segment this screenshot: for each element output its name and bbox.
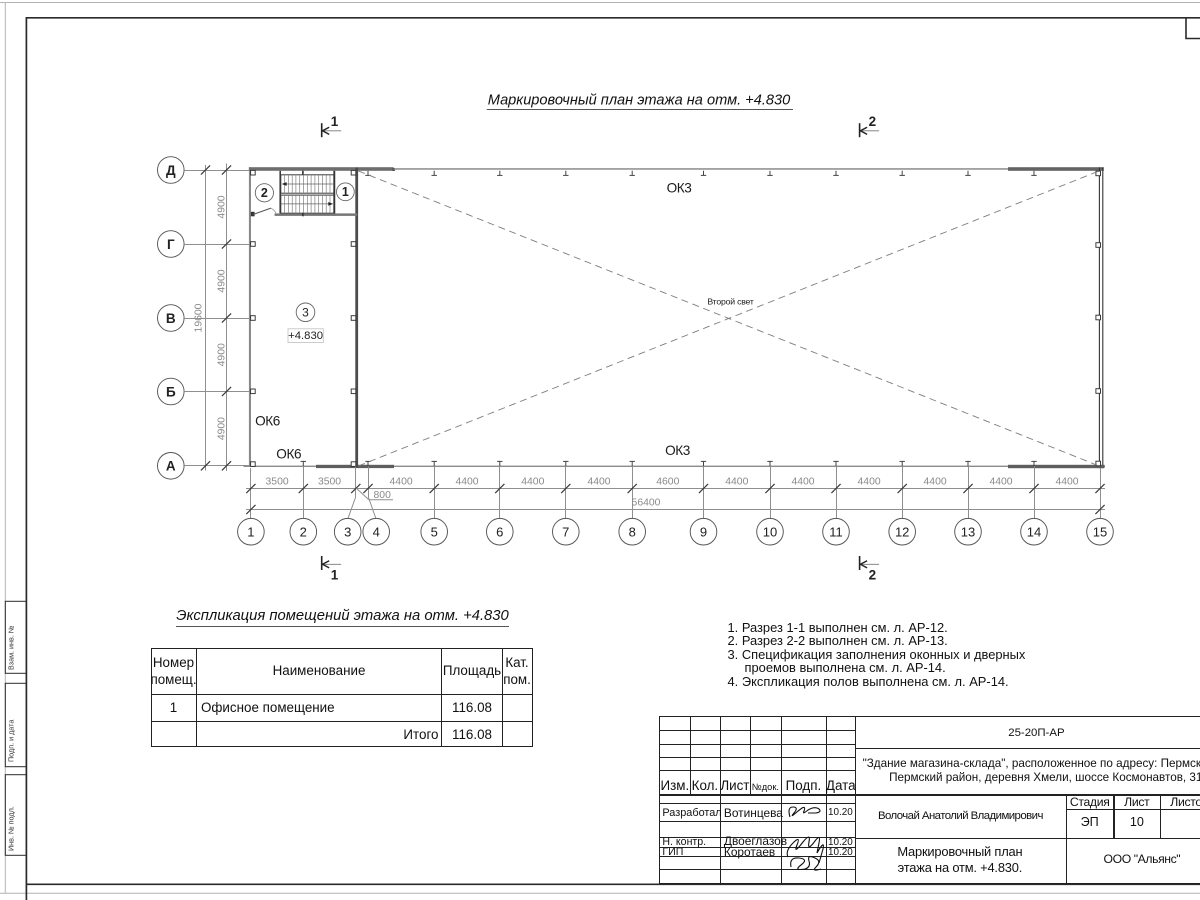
- svg-text:В: В: [166, 311, 176, 326]
- svg-text:4400: 4400: [989, 477, 1012, 488]
- svg-text:4400: 4400: [1055, 477, 1078, 488]
- svg-text:3: 3: [302, 306, 309, 320]
- svg-text:13: 13: [961, 525, 975, 540]
- svg-text:6: 6: [496, 525, 503, 540]
- svg-text:Б: Б: [166, 384, 176, 399]
- svg-text:+4.830: +4.830: [288, 330, 323, 342]
- svg-text:4400: 4400: [725, 477, 748, 488]
- svg-text:4900: 4900: [217, 195, 228, 218]
- svg-text:800: 800: [374, 490, 392, 501]
- svg-text:3500: 3500: [266, 477, 289, 488]
- svg-text:5: 5: [431, 525, 438, 540]
- svg-text:ОК3: ОК3: [665, 443, 690, 458]
- svg-text:8: 8: [629, 525, 636, 540]
- svg-text:1: 1: [331, 568, 339, 583]
- svg-text:4400: 4400: [791, 477, 814, 488]
- svg-text:Второй свет: Второй свет: [707, 296, 754, 306]
- svg-text:4400: 4400: [587, 477, 610, 488]
- svg-text:15: 15: [1093, 525, 1107, 540]
- svg-text:56400: 56400: [632, 498, 661, 509]
- svg-text:2: 2: [300, 525, 307, 540]
- svg-text:1: 1: [342, 185, 349, 199]
- svg-text:14: 14: [1027, 525, 1041, 540]
- svg-text:9: 9: [700, 525, 707, 540]
- svg-text:2: 2: [869, 568, 877, 583]
- svg-text:4400: 4400: [455, 477, 478, 488]
- svg-text:4900: 4900: [217, 269, 228, 292]
- svg-text:12: 12: [895, 525, 909, 540]
- svg-text:4900: 4900: [217, 343, 228, 366]
- svg-text:Взам. инв. №: Взам. инв. №: [7, 625, 16, 670]
- svg-text:7: 7: [562, 525, 569, 540]
- svg-text:4400: 4400: [858, 477, 881, 488]
- svg-text:Д: Д: [166, 163, 176, 178]
- svg-text:1: 1: [247, 525, 254, 540]
- svg-text:3: 3: [344, 525, 351, 540]
- svg-text:4900: 4900: [217, 417, 228, 440]
- svg-text:4400: 4400: [390, 477, 413, 488]
- svg-text:1: 1: [331, 114, 339, 129]
- svg-text:2: 2: [261, 186, 268, 200]
- svg-text:2: 2: [869, 114, 877, 129]
- svg-text:Маркировочный план этажа на от: Маркировочный план этажа на отм. +4.830: [488, 93, 790, 109]
- svg-text:Подп. и дата: Подп. и дата: [7, 720, 16, 762]
- svg-text:19600: 19600: [194, 303, 205, 332]
- svg-text:4600: 4600: [656, 477, 679, 488]
- svg-text:10: 10: [763, 525, 777, 540]
- svg-text:А: А: [166, 459, 176, 474]
- svg-text:Инв. № подл.: Инв. № подл.: [7, 806, 16, 851]
- svg-text:ОК6: ОК6: [255, 413, 280, 428]
- svg-text:4400: 4400: [924, 477, 947, 488]
- svg-text:Г: Г: [167, 237, 175, 252]
- svg-text:11: 11: [829, 525, 843, 540]
- svg-text:3500: 3500: [318, 477, 341, 488]
- svg-text:ОК3: ОК3: [667, 181, 692, 196]
- svg-text:4400: 4400: [521, 477, 544, 488]
- svg-text:4: 4: [373, 525, 380, 540]
- svg-text:ОК6: ОК6: [276, 446, 301, 461]
